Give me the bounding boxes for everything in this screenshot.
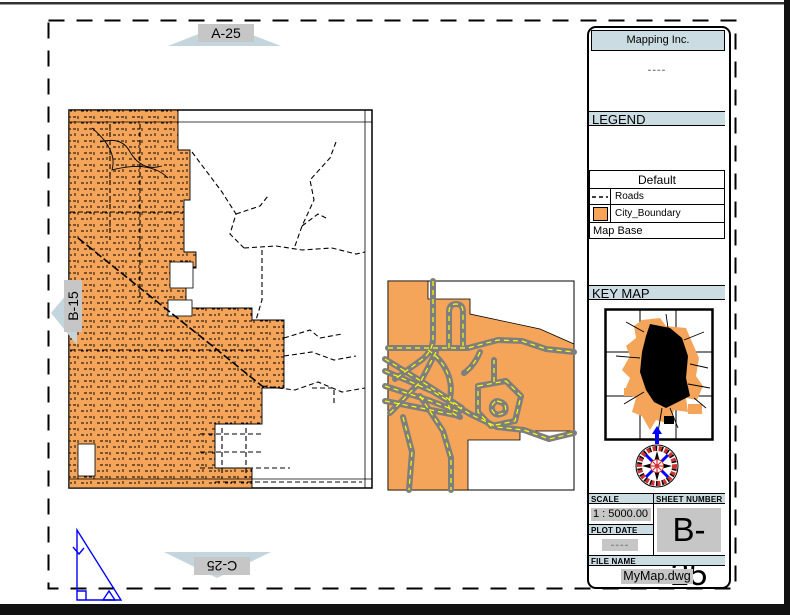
- city-boundary-symbol: [590, 205, 611, 222]
- dashed-line-icon: [591, 193, 609, 201]
- north-arrow-compass: [631, 424, 683, 490]
- nav-label-top-sheet[interactable]: A-25: [198, 24, 254, 42]
- legend-table: Default Roads City_Boundary Map Base: [589, 170, 725, 239]
- legend-section-header: LEGEND: [589, 111, 725, 126]
- sheet-number-value: B-25: [657, 508, 721, 552]
- scale-header: SCALE: [589, 493, 653, 504]
- page-bottom-edge: [0, 604, 790, 615]
- detail-map-viewport[interactable]: [385, 281, 574, 490]
- title-block: Mapping Inc. ---- LEGEND Default Roads C…: [587, 26, 731, 589]
- page-right-edge: [784, 0, 790, 615]
- legend-label-roads: Roads: [611, 191, 644, 202]
- company-name-header: Mapping Inc.: [591, 30, 725, 51]
- main-map-viewport[interactable]: [69, 110, 372, 488]
- file-name-header: FILE NAME: [589, 555, 725, 566]
- orange-swatch-icon: [593, 207, 608, 221]
- legend-map-base-row: Map Base: [590, 222, 724, 238]
- legend-row-city-boundary: City_Boundary: [590, 204, 724, 222]
- legend-map-base-label: Map Base: [593, 225, 643, 237]
- scale-value: 1 : 5000.00: [591, 508, 651, 521]
- keymap-section-header: KEY MAP: [589, 285, 725, 300]
- legend-label-city-boundary: City_Boundary: [611, 208, 681, 219]
- file-name-value: MyMap.dwg: [621, 569, 693, 584]
- plot-date-value: ----: [602, 539, 638, 551]
- titleblock-divider: [653, 504, 654, 555]
- plot-layout-page: A-25 B-15 C-25 Mapping Inc. ---- LEGEND …: [0, 0, 790, 615]
- plot-date-header: PLOT DATE: [589, 524, 653, 535]
- nav-label-bottom-sheet[interactable]: C-25: [194, 557, 250, 575]
- nav-label-left-sheet[interactable]: B-15: [64, 280, 82, 332]
- sheet-number-header: SHEET NUMBER: [653, 493, 725, 504]
- legend-group-label: Default: [638, 173, 676, 187]
- legend-group-row: Default: [590, 171, 724, 188]
- legend-row-roads: Roads: [590, 188, 724, 204]
- key-map-thumbnail: [604, 308, 714, 442]
- north-arrow-icon: [652, 426, 662, 444]
- company-note-placeholder: ----: [589, 64, 725, 76]
- page-top-edge: [0, 2, 790, 5]
- roads-symbol: [590, 189, 611, 204]
